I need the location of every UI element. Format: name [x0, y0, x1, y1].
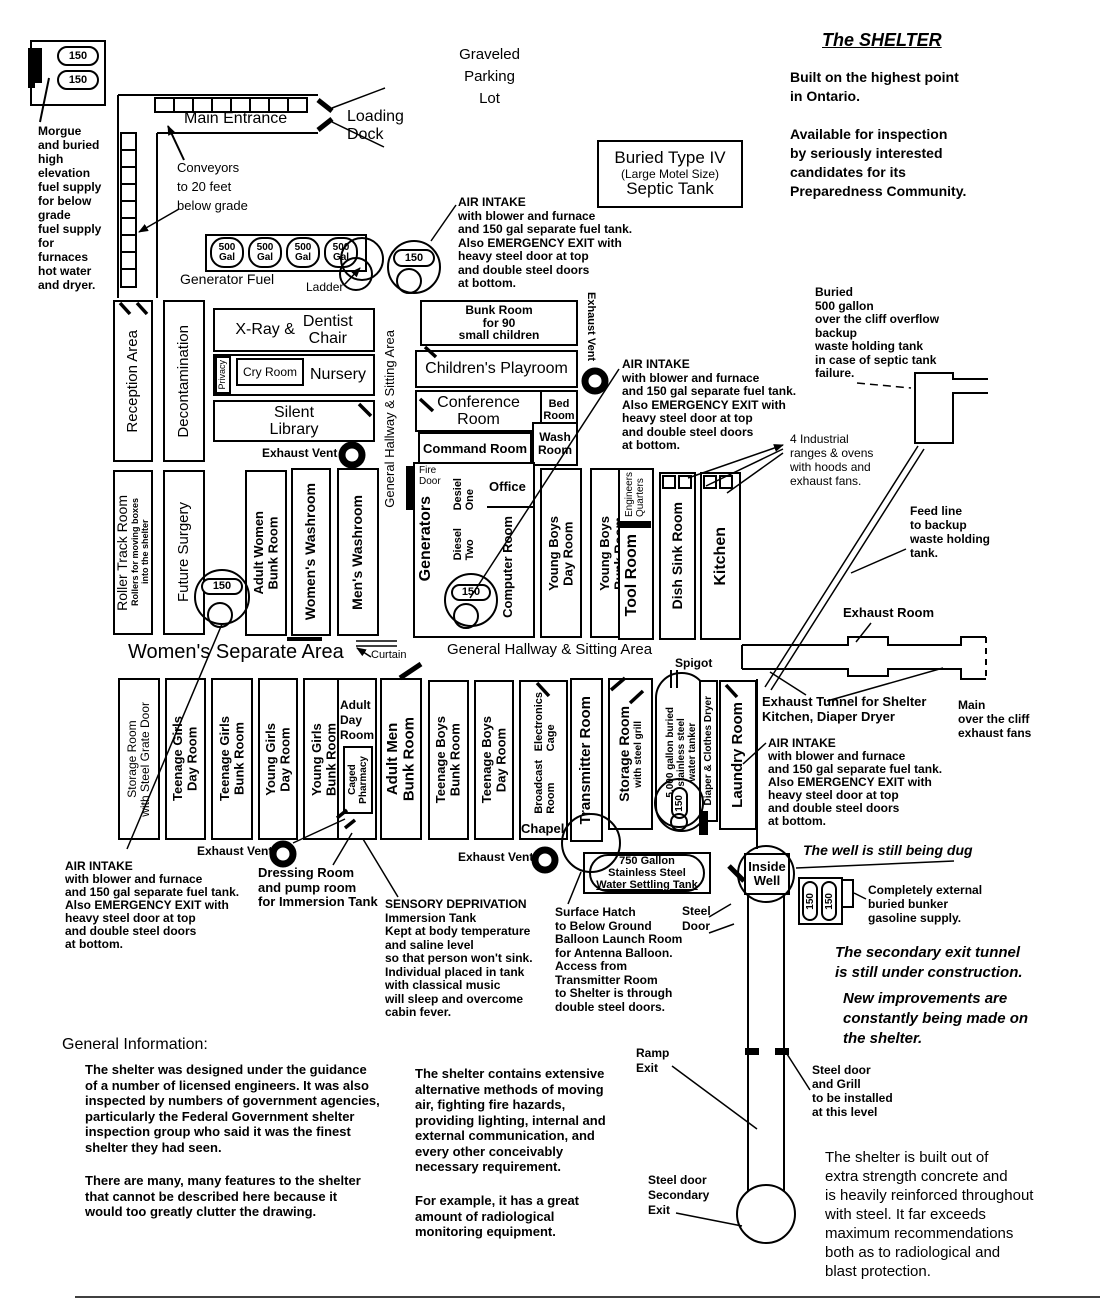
tool-room-wrap: Tool Room [623, 534, 641, 621]
transmitter-label: Transmitter Room [578, 696, 595, 824]
storage-grate-label: Storage Room with Steel Grate Door [126, 702, 152, 817]
main-entrance-label: Main Entrance [184, 110, 287, 128]
shelter-floor-plan: 150 150 Morgue and buried high elevation… [0, 0, 1100, 1300]
room-bunk-children: Bunk Room for 90 small children [420, 300, 578, 346]
sensory-deprivation-note: SENSORY DEPRIVATION Immersion Tank Kept … [385, 898, 533, 1020]
fuel-tank-500-4: 500 Gal [324, 237, 358, 268]
room-childrens-playroom: Children's Playroom [415, 350, 578, 388]
chapel-label: Chapel [521, 822, 564, 837]
cry-room-label: Cry Room [243, 366, 297, 379]
secondary-exit-note: Steel door Secondary Exit [648, 1173, 709, 1218]
diesel-one-label: Desiel One [452, 478, 476, 510]
well-dug-note: The well is still being dug [803, 843, 973, 859]
morgue-tank-150-b: 150 [57, 70, 99, 90]
room-silent-library: Silent Library [213, 400, 375, 442]
improvements-note: New improvements are constantly being ma… [843, 989, 1028, 1049]
fire-door-label: Fire Door [419, 466, 441, 487]
womens-washroom-label: Women's Washroom [303, 483, 318, 620]
diaper-dryer-label: Diaper & Clothes Dryer [703, 696, 714, 805]
parking-lot-label: Graveled Parking Lot [442, 44, 537, 110]
air-intake-note-mid: AIR INTAKE with blower and furnace and 1… [622, 358, 796, 453]
computer-room-label: Computer Room [501, 516, 515, 618]
wash-room-label: Wash Room [538, 431, 572, 457]
broadcast-room-label: Broadcast Room [533, 760, 557, 814]
main-fans-note: Main over the cliff exhaust fans [958, 698, 1031, 740]
built-out-note: The shelter is built out of extra streng… [825, 1148, 1033, 1281]
teenage-boys-day-label: Teenage Boys Day Room [480, 716, 509, 803]
electronics-cage-label: Electronics Cage [533, 692, 557, 751]
exhaust-vent-icon [273, 844, 293, 864]
settling-tank-capsule: 750 Gallon Stainless Steel Water Settlin… [589, 854, 705, 892]
general-info-p4: For example, it has a great amount of ra… [415, 1193, 579, 1240]
room-wash: Wash Room [532, 422, 578, 466]
exhaust-vent-label-2: Exhaust Vent [585, 292, 597, 361]
gasoline-150-b-text: 150 [824, 893, 835, 910]
dentist-label: Dentist Chair [303, 313, 353, 348]
diesel-one-wrap: Desiel One [452, 478, 476, 515]
exhaust-vent-label-4: Exhaust Vent [458, 851, 533, 864]
kitchen-label: Kitchen [712, 527, 730, 586]
general-info-heading: General Information: [62, 1036, 208, 1054]
room-young-girls-day: Young Girls Day Room [258, 678, 298, 840]
tanker-150-text: 150 [674, 795, 685, 812]
dressing-room-note: Dressing Room and pump room for Immersio… [258, 866, 378, 910]
engineers-quarters-label: Engineers Quarters [624, 472, 646, 517]
exhaust-room-label: Exhaust Room [843, 606, 934, 621]
room-teenage-boys-day: Teenage Boys Day Room [474, 680, 514, 840]
generator-fuel-label: Generator Fuel [180, 272, 274, 288]
hallway-upper-label: General Hallway & Sitting Area [383, 330, 397, 508]
exhaust-tunnel-note: Exhaust Tunnel for Shelter Kitchen, Diap… [762, 694, 926, 724]
nursery-label: Nursery [310, 366, 366, 383]
future-surgery-label: Future Surgery [176, 502, 193, 602]
inside-well-box: Inside Well [744, 853, 790, 895]
gasoline-150-b: 150 [821, 881, 837, 921]
gasoline-note: Completely external buried bunker gasoli… [868, 883, 982, 925]
adult-women-bunk-label: Adult Women Bunk Room [252, 511, 281, 595]
mens-washroom-label: Men's Washroom [350, 495, 365, 610]
conference-label: Conference Room [437, 394, 520, 429]
room-xray-dentist: X-Ray & Dentist Chair [213, 308, 375, 352]
room-conference: Conference Room [415, 390, 542, 432]
room-diaper-dryer: Diaper & Clothes Dryer [699, 680, 718, 822]
decontamination-label: Decontamination [176, 325, 193, 438]
steel-grill-note: Steel door and Grill to be installed at … [812, 1063, 893, 1119]
room-mens-washroom: Men's Washroom [337, 468, 379, 636]
teenage-boys-bunk-label: Teenage Boys Bunk Room [434, 716, 463, 803]
storage-grill-label: Storage Room [617, 706, 632, 802]
exhaust-vent-label-1: Exhaust Vent [262, 447, 337, 460]
teenage-girls-bunk-label: Teenage Girls Bunk Room [218, 716, 247, 801]
room-womens-washroom: Women's Washroom [291, 468, 331, 636]
title-paragraph-2: Available for inspection by seriously in… [790, 125, 966, 201]
adult-men-bunk-label: Adult Men Bunk Room [385, 717, 418, 801]
room-young-boys-day: Young Boys Day Room [540, 468, 582, 638]
fuel-tank-150-left: 150 [201, 578, 243, 595]
room-caged-pharmacy: Caged Pharmacy [343, 746, 373, 814]
secondary-tunnel-note: The secondary exit tunnel is still under… [835, 943, 1023, 983]
fuel-tank-150-gen: 150 [451, 584, 491, 601]
diesel-two-label: Diesel Two [452, 528, 476, 560]
exhaust-vent-label-3: Exhaust Vent [197, 845, 272, 858]
reception-label: Reception Area [125, 330, 142, 433]
hallway-upper-label-wrap: General Hallway & Sitting Area [383, 330, 397, 513]
room-roller-track: Roller Track Room Rollers for moving box… [113, 470, 153, 635]
surface-hatch-note: Surface Hatch to Below Ground Balloon La… [555, 906, 682, 1014]
septic-line1: Buried Type IV [614, 149, 725, 167]
privacy-strip: Privacy [215, 356, 231, 394]
laundry-label: Laundry Room [730, 702, 747, 808]
privacy-label: Privacy [218, 360, 228, 390]
computer-room-wrap: Computer Room [501, 516, 515, 623]
engineers-quarters-wrap: Engineers Quarters [624, 472, 646, 522]
room-decontamination: Decontamination [163, 300, 205, 462]
dish-sink-label: Dish Sink Room [670, 502, 685, 609]
ramp-exit-label: Ramp Exit [636, 1046, 669, 1076]
xray-label: X-Ray & [235, 321, 295, 338]
room-transmitter: Transmitter Room [570, 678, 603, 842]
title-paragraph-1: Built on the highest point in Ontario. [790, 68, 959, 106]
caged-pharmacy-label: Caged Pharmacy [347, 756, 369, 804]
ladder-label: Ladder [306, 281, 343, 294]
young-girls-bunk-label: Young Girls Bunk Room [310, 723, 339, 796]
industrial-ranges-note: 4 Industrial ranges & ovens with hoods a… [790, 432, 873, 488]
air-intake-tank-150-top: 150 [393, 249, 435, 267]
air-intake-note-bottom-left: AIR INTAKE with blower and furnace and 1… [65, 860, 239, 951]
room-storage-grate: Storage Room with Steel Grate Door [118, 678, 160, 840]
loading-dock-label: Loading Dock [347, 108, 404, 144]
womens-separate-area-label: Women's Separate Area [128, 641, 344, 663]
room-future-surgery: Future Surgery [163, 470, 205, 635]
room-cry: Cry Room [236, 358, 304, 386]
adult-day-label: Adult Day Room [340, 698, 374, 743]
tanker-150-cap: 150 [671, 787, 688, 819]
buried-500-note: Buried 500 gallon over the cliff overflo… [815, 286, 939, 381]
exhaust-vent-icon [585, 371, 605, 391]
general-info-p1: The shelter was designed under the guida… [85, 1062, 380, 1155]
fuel-tank-500-1: 500 Gal [210, 237, 244, 268]
room-teenage-girls-day: Teenage Girls Day Room [165, 678, 206, 840]
generators-label: Generators [417, 496, 435, 581]
room-command: Command Room [418, 432, 532, 466]
silent-library-label: Silent Library [270, 404, 319, 439]
inside-well-label: Inside Well [748, 860, 786, 888]
fuel-tank-500-3: 500 Gal [286, 237, 320, 268]
fuel-tank-500-2: 500 Gal [248, 237, 282, 268]
morgue-tank-150-a: 150 [57, 46, 99, 66]
tool-room-label: Tool Room [623, 534, 641, 616]
settling-tank-sub: Water Settling Tank [596, 879, 697, 891]
exhaust-vent-label-2-wrap: Exhaust Vent [585, 292, 597, 366]
general-info-p3: The shelter contains extensive alternati… [415, 1066, 606, 1175]
room-adult-women-bunk: Adult Women Bunk Room [245, 470, 287, 636]
storage-grill-sub: with steel grill [633, 721, 644, 788]
gasoline-150-a-text: 150 [805, 893, 816, 910]
roller-track-label: Roller Track Room [115, 495, 130, 611]
electronics-cage-wrap: Electronics Cage [533, 692, 557, 756]
water-tanker-label: 5,000 gallon buried stainless steel wate… [665, 707, 698, 798]
childrens-playroom-label: Children's Playroom [425, 360, 568, 377]
morgue-note: Morgue and buried high elevation fuel su… [38, 124, 101, 292]
room-kitchen: Kitchen [700, 472, 741, 640]
spigot-label: Spigot [675, 657, 712, 670]
exhaust-vent-icon [535, 850, 555, 870]
general-info-p2: There are many, many features to the she… [85, 1173, 361, 1220]
young-boys-day-label: Young Boys Day Room [547, 516, 576, 591]
steel-door-note: Steel Door [682, 904, 711, 934]
room-dish-sink: Dish Sink Room [659, 472, 696, 640]
generators-label-wrap: Generators [417, 496, 435, 586]
young-girls-day-label: Young Girls Day Room [264, 723, 293, 796]
room-teenage-boys-bunk: Teenage Boys Bunk Room [428, 680, 469, 840]
exhaust-vent-icon [342, 445, 362, 465]
hallway-lower-label: General Hallway & Sitting Area [447, 642, 652, 659]
roller-track-sub: Rollers for moving boxes into the shelte… [131, 498, 151, 606]
curtain-label: Curtain [371, 649, 406, 661]
feed-line-note: Feed line to backup waste holding tank. [910, 504, 990, 560]
conveyors-note: Conveyors to 20 feet below grade [177, 158, 248, 215]
bunk-children-label: Bunk Room for 90 small children [459, 304, 540, 343]
gasoline-150-a: 150 [802, 881, 818, 921]
broadcast-room-wrap: Broadcast Room [533, 760, 557, 819]
command-label: Command Room [423, 442, 527, 456]
diesel-two-wrap: Diesel Two [452, 528, 476, 565]
air-intake-note-right: AIR INTAKE with blower and furnace and 1… [768, 737, 942, 828]
septic-line3: Septic Tank [626, 180, 714, 198]
air-intake-note-top: AIR INTAKE with blower and furnace and 1… [458, 196, 632, 291]
settling-tank-label: 750 Gallon Stainless Steel [608, 855, 686, 879]
room-teenage-girls-bunk: Teenage Girls Bunk Room [211, 678, 253, 840]
room-laundry: Laundry Room [719, 680, 757, 830]
page-title: The SHELTER [822, 30, 942, 50]
room-reception: Reception Area [113, 300, 153, 462]
bed-room-label: Bed Room [543, 399, 574, 423]
teenage-girls-day-label: Teenage Girls Day Room [171, 716, 200, 801]
office-label: Office [489, 480, 526, 495]
room-adult-men-bunk: Adult Men Bunk Room [380, 678, 422, 840]
room-storage-grill: Storage Room with steel grill [608, 678, 653, 830]
